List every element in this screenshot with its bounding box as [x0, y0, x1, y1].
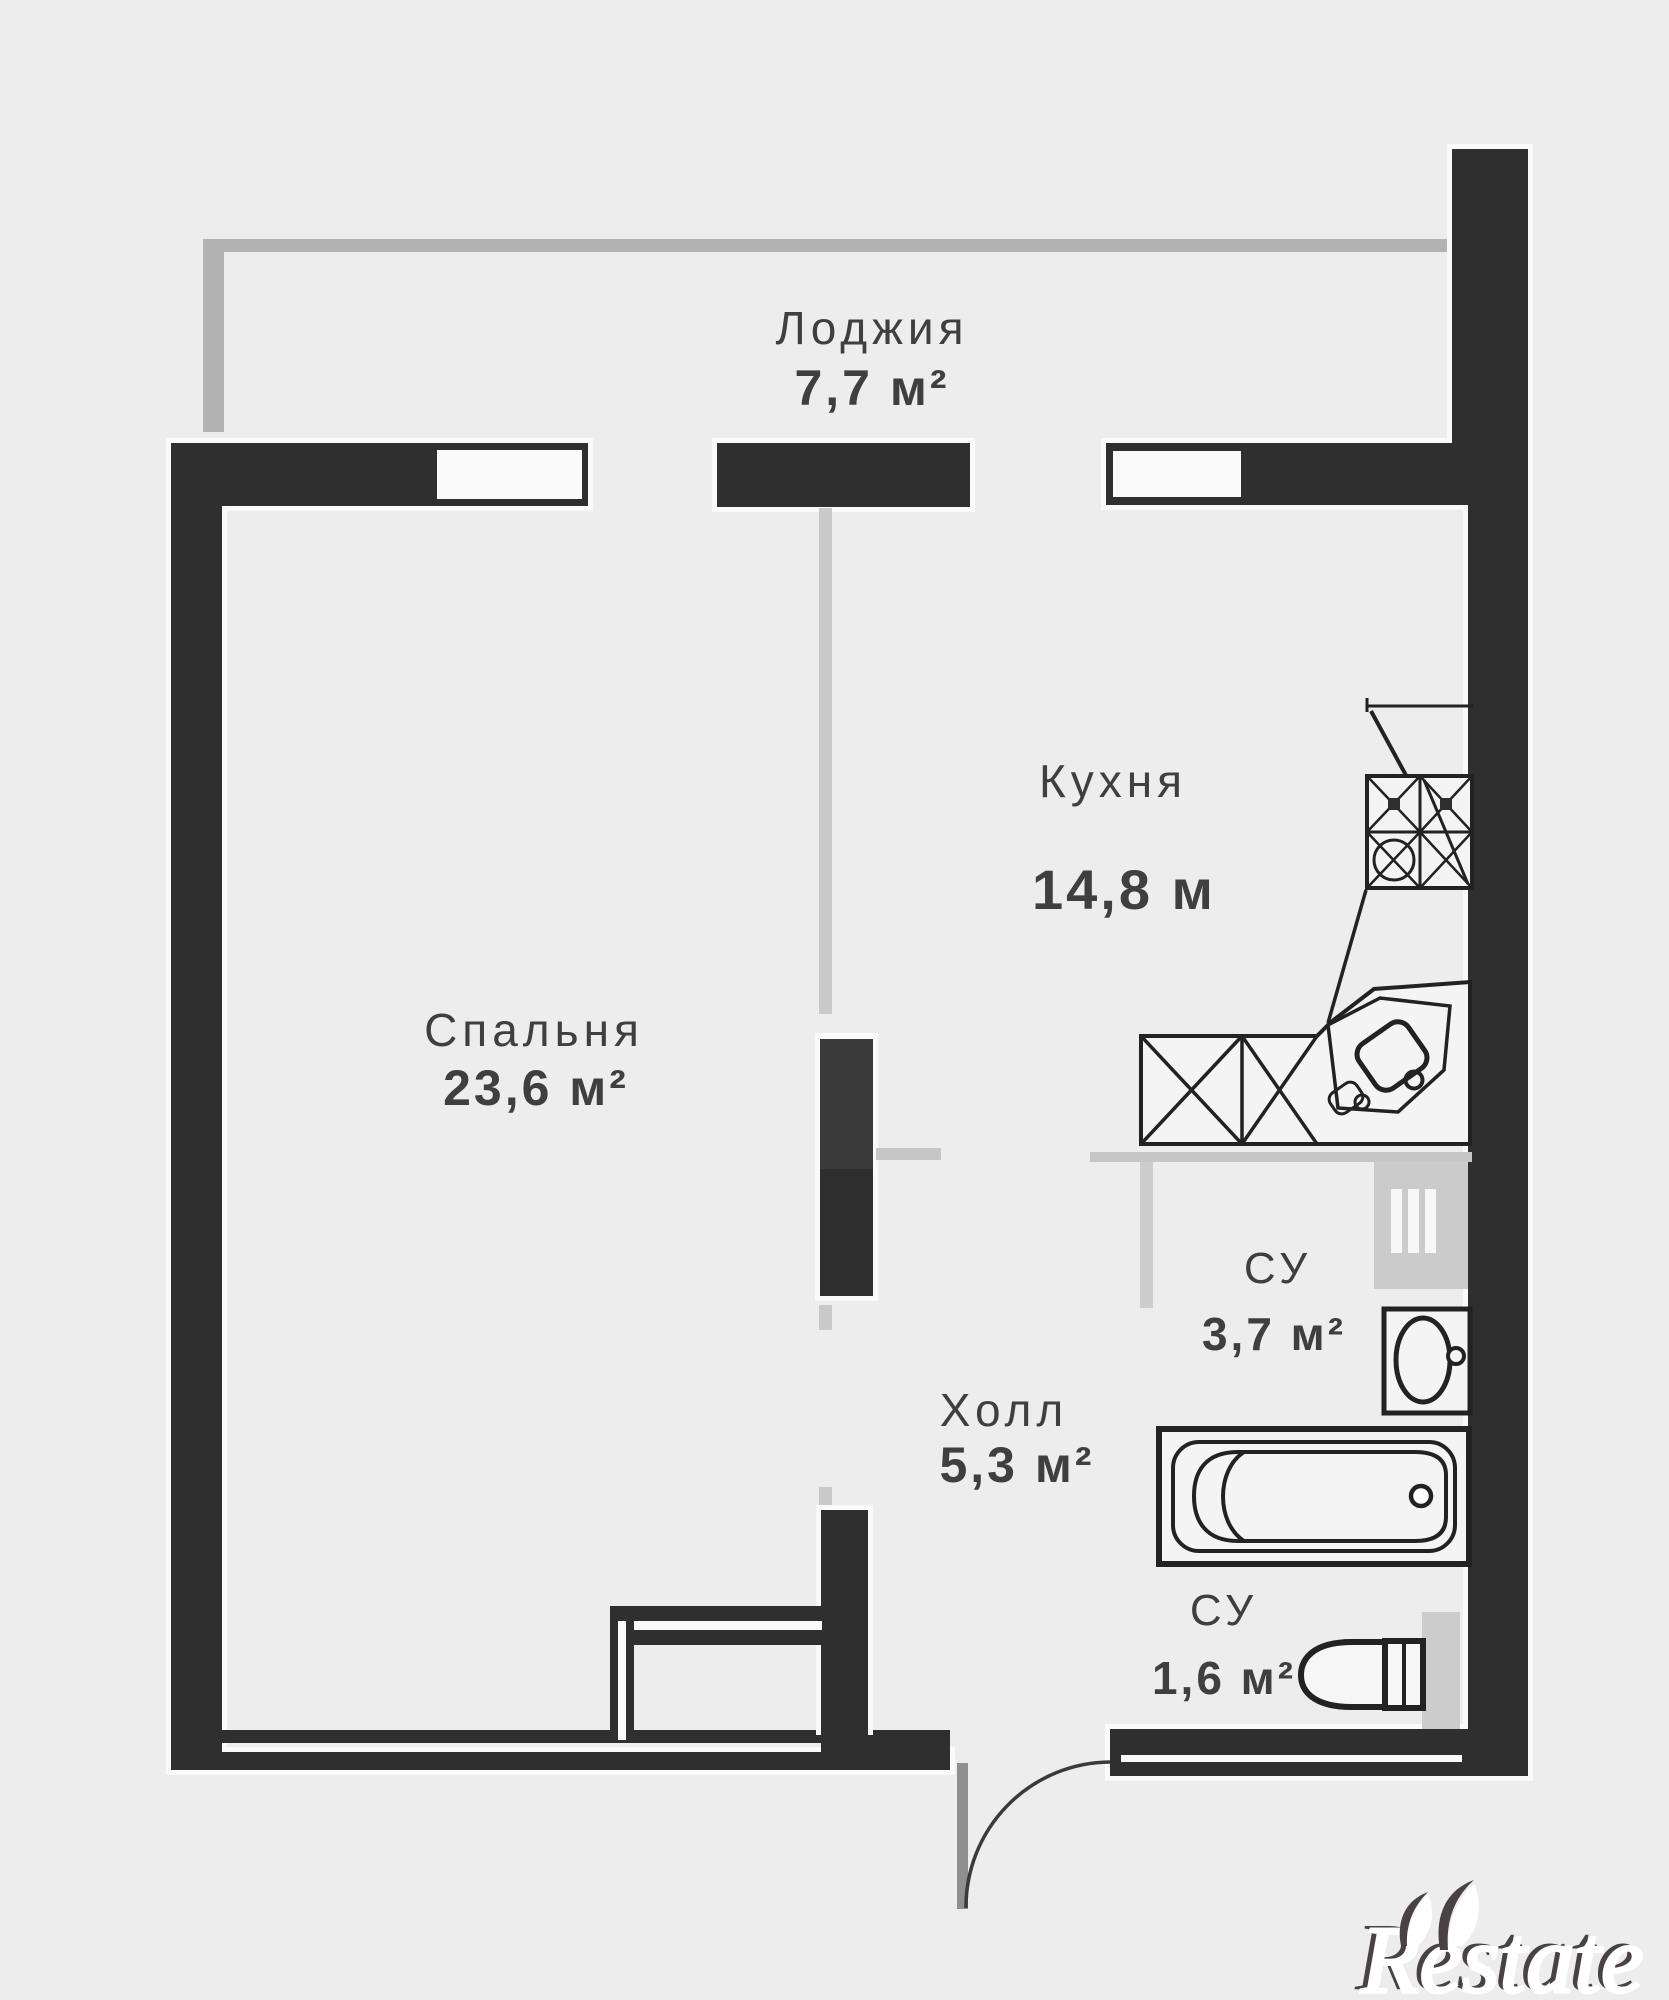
svg-text:Кухня: Кухня	[1039, 755, 1187, 807]
svg-text:7,7 м²: 7,7 м²	[794, 360, 949, 416]
svg-text:23,6 м²: 23,6 м²	[443, 1060, 629, 1116]
svg-text:Спальня: Спальня	[424, 1004, 644, 1056]
svg-text:3,7 м²: 3,7 м²	[1202, 1308, 1346, 1360]
svg-text:14,8 м: 14,8 м	[1032, 858, 1216, 921]
svg-text:5,3 м²: 5,3 м²	[939, 1437, 1094, 1493]
svg-text:Лоджия: Лоджия	[776, 302, 969, 354]
svg-text:СУ: СУ	[1244, 1244, 1312, 1293]
svg-text:1,6 м²: 1,6 м²	[1152, 1652, 1296, 1704]
svg-text:Холл: Холл	[940, 1384, 1068, 1436]
svg-text:СУ: СУ	[1190, 1586, 1258, 1635]
